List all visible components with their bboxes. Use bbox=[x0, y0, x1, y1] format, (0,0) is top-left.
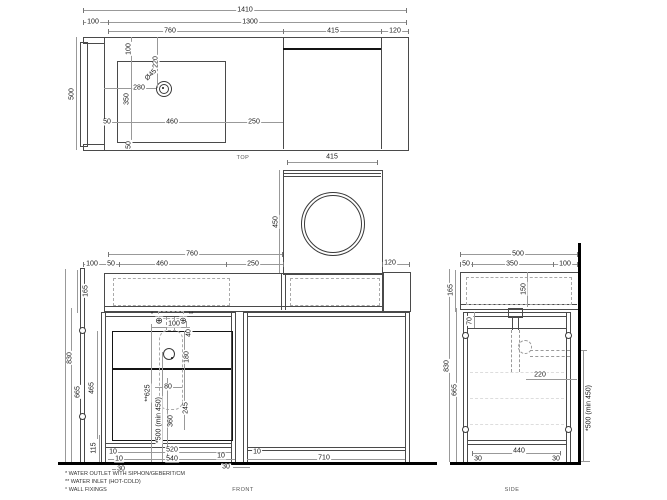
cabinet-bottom bbox=[467, 444, 566, 445]
dim-line bbox=[104, 88, 156, 89]
dim-label: 30 bbox=[221, 464, 231, 471]
wall-fixing-icon bbox=[79, 327, 86, 334]
footnote: ** WATER INLET (HOT-COLD) bbox=[65, 480, 141, 486]
dim-label: 760 bbox=[185, 251, 199, 258]
cabinet-top bbox=[467, 316, 566, 317]
basin-hidden-outline bbox=[290, 278, 380, 306]
dim-tick bbox=[108, 252, 109, 257]
dim-tick bbox=[83, 262, 84, 267]
dim-line bbox=[76, 37, 77, 150]
dim-label: 280 bbox=[132, 85, 146, 92]
dim-tick bbox=[287, 160, 288, 165]
footnote: * WATER OUTLET WITH SIPHON/GEBERIT/CM bbox=[65, 472, 185, 478]
dim-label: 520 bbox=[165, 447, 179, 454]
dim-label: 440 bbox=[512, 448, 526, 455]
footnote-ref: * bbox=[151, 312, 153, 318]
dim-line bbox=[131, 61, 132, 141]
dim-line bbox=[581, 461, 590, 462]
dim-label: 115 bbox=[91, 441, 98, 454]
dim-tick bbox=[108, 29, 109, 34]
dim-label: 540 bbox=[165, 456, 179, 463]
dim-label: *500 (min 450) bbox=[586, 384, 593, 432]
dim-label: 180 bbox=[184, 350, 191, 364]
cabinet-top bbox=[243, 312, 409, 313]
dim-tick bbox=[283, 262, 284, 267]
wall-fixing-icon bbox=[565, 332, 572, 339]
dim-label: 50 bbox=[102, 119, 112, 126]
dim-label: 50 bbox=[461, 261, 471, 268]
bay-divider bbox=[381, 37, 382, 149]
cabinet-side bbox=[405, 312, 406, 462]
wall-bracket bbox=[80, 268, 81, 462]
dim-label: 830 bbox=[444, 359, 451, 373]
dim-label: 120 bbox=[383, 260, 397, 267]
bay-divider bbox=[283, 37, 284, 149]
dim-line bbox=[583, 350, 584, 462]
cabinet-top bbox=[247, 316, 405, 317]
dim-tick bbox=[406, 8, 407, 13]
dim-line bbox=[71, 308, 72, 462]
cabinet-side bbox=[235, 312, 236, 462]
cabinet-bottom bbox=[247, 450, 405, 451]
dim-line bbox=[97, 331, 98, 439]
hidden-line bbox=[470, 372, 564, 373]
dim-label: 415 bbox=[326, 28, 340, 35]
wall-fixing-icon bbox=[462, 426, 469, 433]
dim-label: 1410 bbox=[236, 7, 254, 14]
dim-label: 150 bbox=[521, 282, 528, 296]
cabinet-top bbox=[463, 312, 570, 313]
dim-label: **625 bbox=[145, 383, 152, 402]
footnote: ° WALL FIXINGS bbox=[65, 488, 107, 494]
dim-label: 500 bbox=[69, 87, 76, 101]
hidden-line bbox=[470, 398, 564, 399]
ledge-bar bbox=[80, 42, 88, 147]
drain-inner bbox=[159, 84, 169, 94]
dim-label: 70 bbox=[467, 316, 474, 326]
washer-front-edge bbox=[283, 48, 381, 50]
dim-line bbox=[455, 270, 456, 312]
drain-center bbox=[162, 87, 164, 89]
cabinet-bottom bbox=[105, 443, 231, 444]
dim-tick bbox=[282, 252, 283, 257]
dim-tick bbox=[553, 262, 554, 267]
dim-line bbox=[287, 162, 377, 163]
dim-line bbox=[99, 435, 100, 462]
counter-band-line bbox=[104, 306, 382, 307]
dim-label: 50 bbox=[106, 261, 116, 268]
dim-tick bbox=[409, 262, 410, 267]
cabinet-bottom bbox=[247, 447, 405, 448]
dim-label: 830 bbox=[67, 351, 74, 365]
counter-band-split bbox=[281, 273, 282, 310]
water-outlet-icon: ⊕ bbox=[155, 317, 163, 326]
dim-label: 100 bbox=[126, 42, 133, 56]
dim-label: 460 bbox=[155, 261, 169, 268]
dim-label: 500 bbox=[511, 251, 525, 258]
dim-label: 10 bbox=[252, 449, 262, 456]
dim-tick bbox=[119, 262, 120, 267]
counter-band-split bbox=[285, 273, 286, 310]
dim-label: 350 bbox=[124, 92, 131, 106]
dim-tick bbox=[226, 262, 227, 267]
dim-line bbox=[65, 269, 66, 462]
dim-label: 665 bbox=[452, 383, 459, 397]
dim-label: 710 bbox=[317, 455, 331, 462]
dim-line bbox=[77, 270, 78, 313]
wall-fixing-icon bbox=[79, 413, 86, 420]
cabinet-bottom bbox=[467, 440, 566, 441]
dim-tick bbox=[108, 20, 109, 25]
end-panel bbox=[382, 272, 411, 312]
cabinet-side bbox=[243, 312, 244, 462]
cabinet-side bbox=[105, 312, 106, 462]
dim-label: 10 bbox=[108, 449, 118, 456]
floor-line bbox=[450, 462, 581, 465]
dim-tick bbox=[406, 20, 407, 25]
cabinet-side bbox=[101, 312, 102, 462]
wall-line bbox=[578, 243, 581, 464]
wall-fixing-icon bbox=[565, 426, 572, 433]
cabinet-side bbox=[247, 312, 248, 462]
basin-hidden-outline bbox=[466, 277, 572, 305]
dim-label: 1300 bbox=[241, 19, 259, 26]
dim-tick bbox=[83, 20, 84, 25]
dim-label: *500 (min 450) bbox=[156, 396, 163, 444]
dim-label: 10 bbox=[114, 456, 124, 463]
cabinet-side bbox=[409, 312, 410, 462]
dim-label: 165 bbox=[448, 283, 455, 297]
dim-label: 360 bbox=[168, 414, 175, 428]
view-label-top: TOP bbox=[237, 155, 250, 161]
dim-label: 760 bbox=[163, 28, 177, 35]
dim-tick bbox=[377, 160, 378, 165]
dim-label: 40 bbox=[186, 328, 193, 338]
dim-tick bbox=[283, 29, 284, 34]
washer-door-inner bbox=[304, 195, 362, 253]
dim-label: 415 bbox=[325, 154, 339, 161]
dim-label: 165 bbox=[83, 284, 90, 298]
dim-tick bbox=[460, 252, 461, 257]
dim-tick bbox=[381, 29, 382, 34]
washer-top-line bbox=[283, 176, 381, 177]
dim-label: 80 bbox=[163, 384, 173, 391]
technical-drawing: 1410 100 1300 760 415 120 500 100 220 Ø4… bbox=[0, 0, 667, 500]
hidden-line bbox=[470, 424, 564, 425]
dim-label: 100 bbox=[85, 261, 99, 268]
dim-line bbox=[233, 467, 250, 468]
dim-label: 250 bbox=[246, 261, 260, 268]
dim-label: 100 bbox=[558, 261, 572, 268]
dim-label: 665 bbox=[75, 385, 82, 399]
footnote-ref: ** bbox=[189, 312, 194, 318]
dim-line bbox=[108, 31, 408, 32]
pipe-hidden bbox=[511, 330, 512, 372]
dim-label: 220 bbox=[533, 372, 547, 379]
water-inlet-dot bbox=[171, 357, 173, 359]
dim-tick bbox=[83, 8, 84, 13]
dim-label: 465 bbox=[89, 381, 96, 395]
dim-label: 10 bbox=[216, 453, 226, 460]
wall-bracket-cap bbox=[80, 268, 85, 269]
dim-line bbox=[526, 379, 577, 380]
top-rail-line bbox=[467, 328, 566, 329]
view-label-front: FRONT bbox=[232, 487, 253, 493]
dim-label: 250 bbox=[247, 119, 261, 126]
dim-label: 350 bbox=[505, 261, 519, 268]
dim-tick bbox=[472, 262, 473, 267]
siphon-hidden bbox=[518, 340, 532, 354]
view-label-side: SIDE bbox=[505, 487, 520, 493]
dim-label: 450 bbox=[273, 215, 280, 229]
dim-label: 460 bbox=[165, 119, 179, 126]
dim-label: 100 bbox=[167, 321, 181, 328]
dim-label: 245 bbox=[183, 401, 190, 415]
dim-line bbox=[474, 312, 475, 328]
water-inlet-point bbox=[163, 348, 175, 360]
dim-label: 120 bbox=[388, 28, 402, 35]
pipe-hidden bbox=[530, 356, 570, 357]
sink-cutout bbox=[117, 61, 226, 143]
pipe-hidden bbox=[530, 350, 570, 351]
washer-top-line bbox=[283, 173, 381, 174]
wall-fixing-icon bbox=[462, 332, 469, 339]
dim-label: 100 bbox=[86, 19, 100, 26]
dim-tick bbox=[408, 29, 409, 34]
dim-label: 50 bbox=[126, 140, 133, 150]
basin-hidden-outline bbox=[113, 278, 230, 306]
